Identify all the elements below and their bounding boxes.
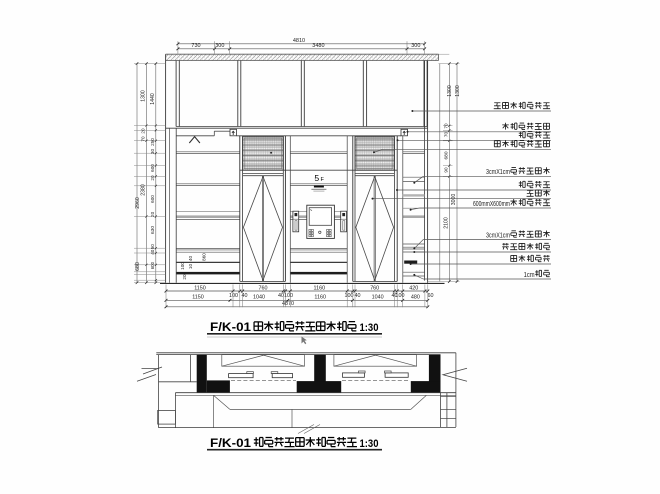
- svg-text:3480: 3480: [312, 43, 324, 49]
- svg-text:2380: 2380: [141, 184, 147, 196]
- svg-text:1cm: 1cm: [524, 272, 535, 279]
- svg-text:70: 70: [444, 123, 449, 129]
- svg-text:40: 40: [150, 249, 155, 255]
- svg-text:30: 30: [150, 149, 155, 155]
- svg-text:680: 680: [444, 151, 450, 159]
- svg-text:20: 20: [141, 128, 146, 134]
- svg-text:1300: 1300: [141, 90, 147, 102]
- svg-text:3cmX1cm: 3cmX1cm: [486, 169, 510, 176]
- svg-text:600: 600: [150, 195, 155, 203]
- svg-text:1300: 1300: [447, 85, 453, 97]
- svg-text:5: 5: [314, 173, 319, 183]
- svg-text:60: 60: [428, 293, 434, 299]
- svg-text:70: 70: [444, 132, 449, 138]
- svg-text:300: 300: [215, 43, 224, 49]
- svg-text:680: 680: [135, 262, 141, 271]
- svg-text:250: 250: [150, 138, 155, 146]
- svg-text:1040: 1040: [253, 295, 265, 301]
- svg-text:F/K-01: F/K-01: [210, 320, 251, 334]
- svg-text:F: F: [320, 177, 324, 183]
- svg-text:70: 70: [141, 136, 146, 142]
- svg-text:100: 100: [180, 262, 185, 270]
- svg-text:4870: 4870: [282, 301, 294, 307]
- svg-text:630: 630: [150, 226, 156, 234]
- svg-text:20: 20: [182, 274, 187, 280]
- svg-text:10: 10: [188, 264, 193, 270]
- svg-text:1150: 1150: [194, 285, 206, 291]
- svg-text:4810: 4810: [293, 38, 305, 44]
- svg-text:40: 40: [188, 256, 193, 262]
- svg-text:2960: 2960: [135, 197, 141, 209]
- svg-text:100: 100: [229, 293, 238, 299]
- svg-text:600mmX600mm: 600mmX600mm: [473, 201, 510, 208]
- svg-text:1040: 1040: [372, 295, 384, 301]
- svg-text:860: 860: [202, 253, 207, 261]
- svg-text:1160: 1160: [314, 295, 326, 301]
- svg-text:600: 600: [150, 164, 155, 172]
- svg-text:300: 300: [411, 43, 420, 49]
- svg-text:90: 90: [444, 167, 449, 173]
- svg-text:100: 100: [396, 293, 405, 299]
- svg-text:3000: 3000: [451, 194, 457, 206]
- svg-text:760: 760: [370, 285, 379, 291]
- svg-text:40: 40: [355, 293, 361, 299]
- svg-text:20: 20: [150, 175, 155, 181]
- svg-text:F/K-01: F/K-01: [210, 436, 251, 450]
- svg-text:1300: 1300: [455, 85, 461, 97]
- svg-text:1:30: 1:30: [360, 322, 379, 334]
- svg-text:50: 50: [150, 244, 155, 250]
- svg-text:600: 600: [150, 261, 155, 269]
- svg-text:100: 100: [345, 293, 354, 299]
- svg-text:1:30: 1:30: [360, 438, 379, 450]
- svg-text:760: 760: [259, 285, 268, 291]
- svg-text:1440: 1440: [150, 93, 156, 105]
- svg-text:20: 20: [150, 211, 155, 217]
- svg-text:1150: 1150: [192, 295, 204, 301]
- svg-text:1160: 1160: [314, 285, 326, 291]
- svg-text:420: 420: [409, 285, 418, 291]
- svg-text:3cmX1cm: 3cmX1cm: [486, 232, 510, 239]
- svg-text:480: 480: [411, 295, 420, 301]
- svg-text:2100: 2100: [444, 217, 450, 229]
- svg-text:730: 730: [191, 43, 200, 49]
